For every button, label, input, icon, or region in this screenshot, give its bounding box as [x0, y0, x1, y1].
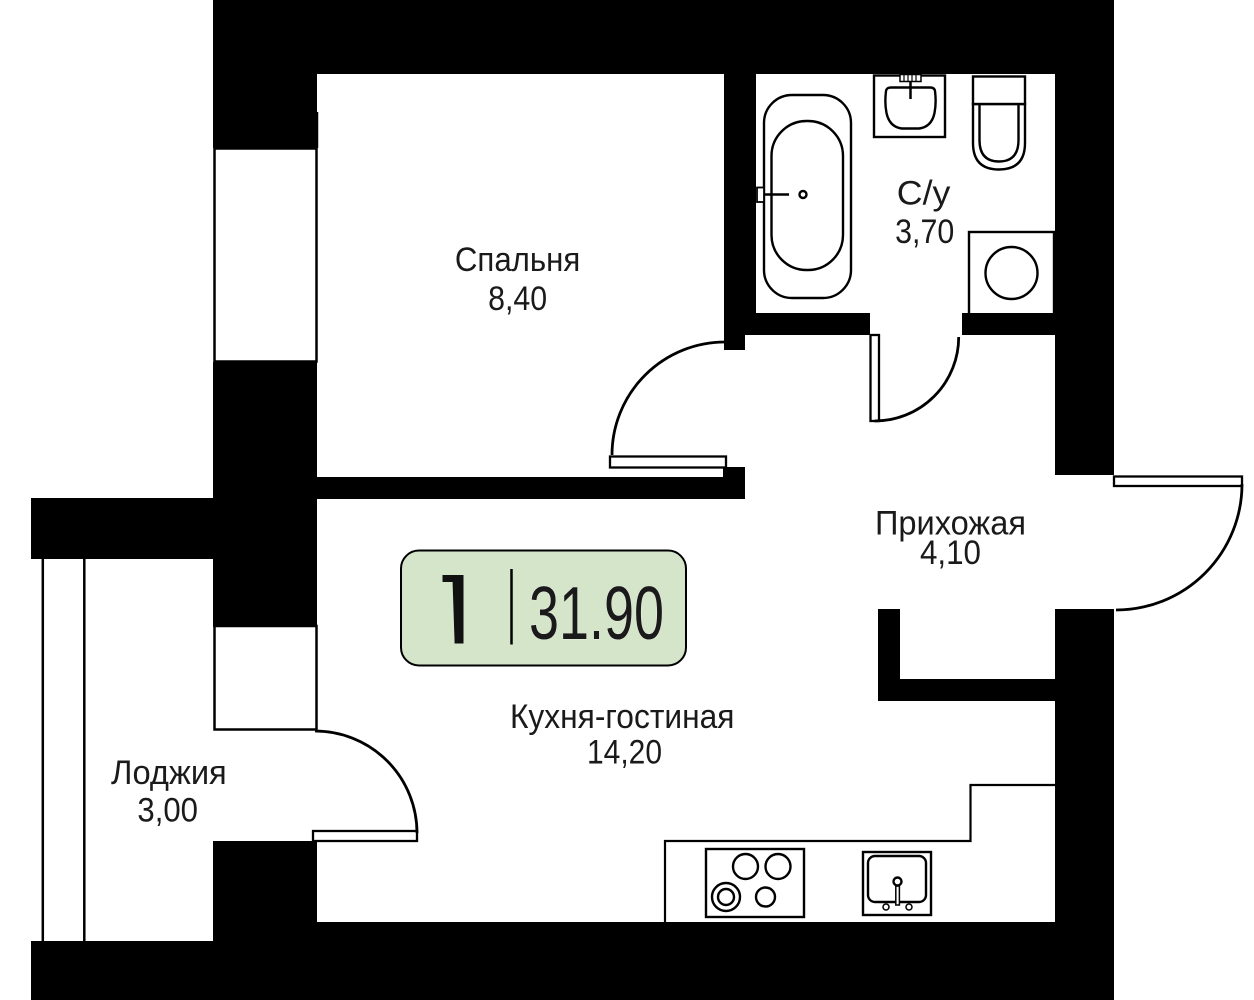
svg-text:Спальня: Спальня: [455, 241, 580, 279]
svg-text:8,40: 8,40: [488, 280, 547, 318]
svg-text:3,00: 3,00: [137, 791, 198, 829]
svg-text:3,70: 3,70: [895, 213, 954, 251]
svg-text:14,20: 14,20: [587, 734, 662, 772]
svg-text:31.90: 31.90: [529, 571, 664, 655]
svg-text:Кухня-гостиная: Кухня-гостиная: [510, 698, 735, 736]
svg-text:Лоджия: Лоджия: [111, 754, 227, 792]
svg-text:4,10: 4,10: [920, 534, 981, 572]
svg-text:С/у: С/у: [897, 175, 951, 213]
